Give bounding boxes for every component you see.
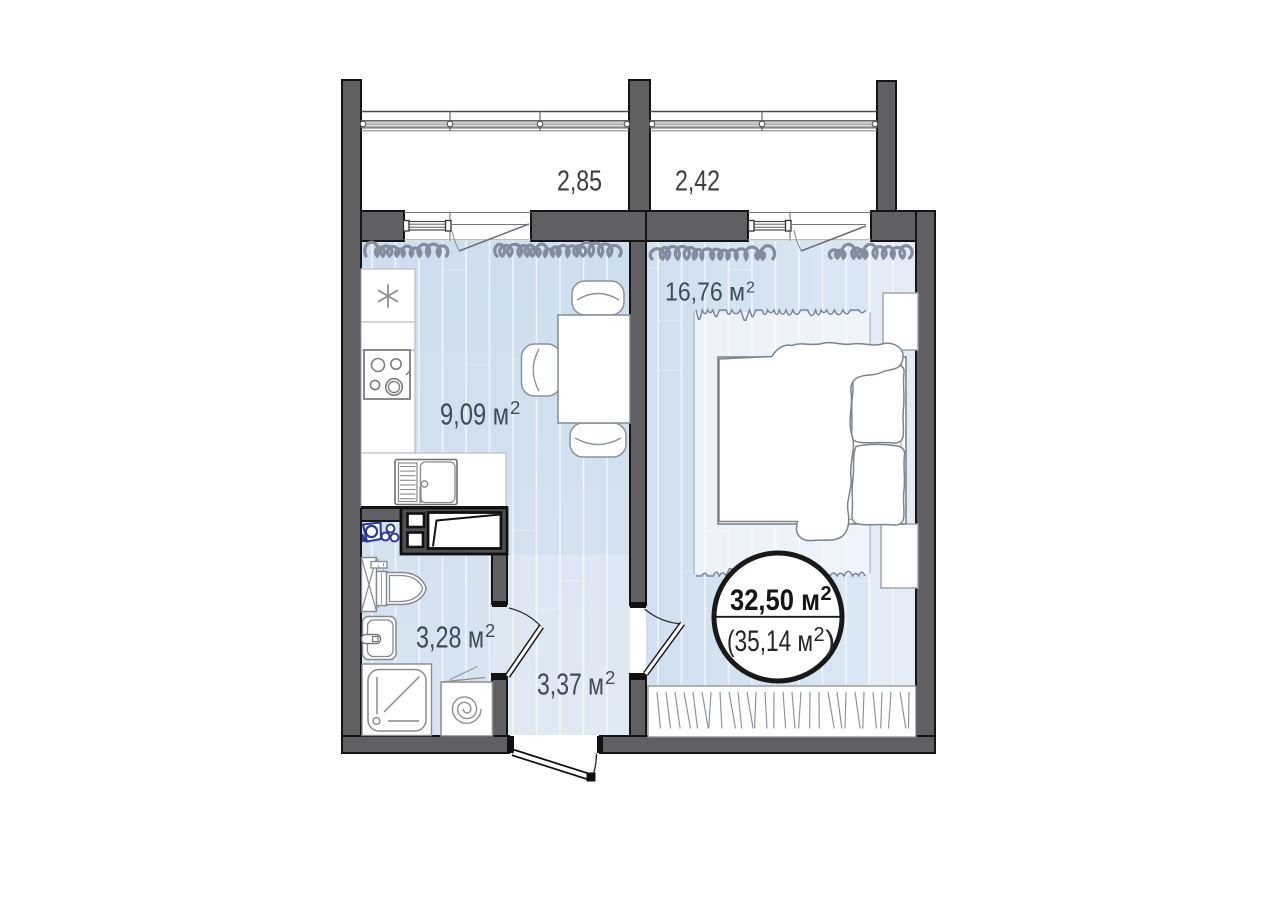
svg-text:2,42: 2,42 [675,166,720,198]
svg-text:2,85: 2,85 [557,166,602,198]
svg-text:32,50 м2: 32,50 м2 [730,583,832,617]
svg-text:3,37 м2: 3,37 м2 [537,667,615,702]
svg-text:16,76 м2: 16,76 м2 [665,277,755,307]
svg-text:9,09 м2: 9,09 м2 [440,397,520,432]
svg-text:3,28 м2: 3,28 м2 [416,619,495,654]
